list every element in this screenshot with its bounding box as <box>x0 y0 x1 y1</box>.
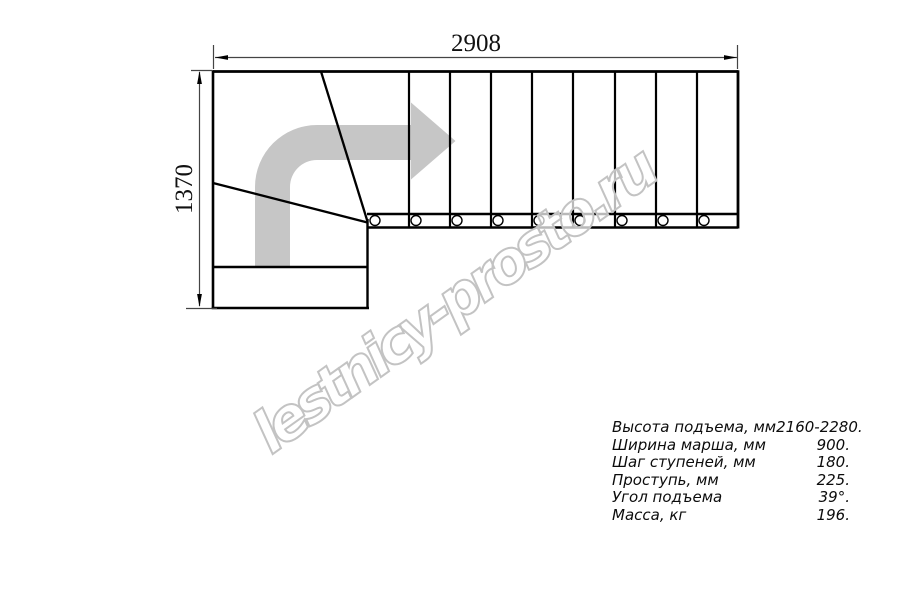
spec-row: Шаг ступеней, мм 180. <box>612 454 850 472</box>
dimension-arrowhead-bottom <box>197 294 202 307</box>
fastener-circle <box>370 216 380 226</box>
spec-label: Угол подъема <box>612 489 722 507</box>
fastener-circle <box>452 216 462 226</box>
fastener-circle <box>534 216 544 226</box>
dimension-arrowhead-right <box>724 55 737 60</box>
spec-label: Шаг ступеней, мм <box>612 454 756 472</box>
dimension-height: 1370 <box>171 71 217 309</box>
spec-row: Угол подъема 39°. <box>612 489 850 507</box>
dimension-width-label: 2908 <box>451 30 501 57</box>
dimension-width: 2908 <box>214 30 738 69</box>
dimension-height-label: 1370 <box>171 164 198 214</box>
spec-value: 196. <box>817 507 850 525</box>
fastener-circle <box>699 216 709 226</box>
spec-label: Масса, кг <box>612 507 686 525</box>
spec-value: 900. <box>817 437 850 455</box>
spec-label: Проступь, мм <box>612 472 719 490</box>
spec-value: 2160-2280. <box>776 419 863 437</box>
spec-row: Ширина марша, мм 900. <box>612 437 850 455</box>
fastener-circle <box>493 216 503 226</box>
spec-value: 225. <box>817 472 850 490</box>
spec-row: Масса, кг 196. <box>612 507 850 525</box>
fastener-circle <box>411 216 421 226</box>
fastener-circle <box>658 216 668 226</box>
spec-table: Высота подъема, мм 2160-2280. Ширина мар… <box>612 419 850 524</box>
winder-section <box>212 70 738 309</box>
spec-label: Ширина марша, мм <box>612 437 766 455</box>
winder-tread-line-2 <box>213 183 368 223</box>
fastener-circle <box>617 216 627 226</box>
dimension-arrowhead-left <box>215 55 228 60</box>
dimension-arrowhead-top <box>197 71 202 84</box>
fastener-circle <box>575 216 585 226</box>
spec-label: Высота подъема, мм <box>612 419 776 437</box>
fastener-circles <box>370 216 709 226</box>
spec-row: Проступь, мм 225. <box>612 472 850 490</box>
spec-row: Высота подъема, мм 2160-2280. <box>612 419 850 437</box>
spec-value: 180. <box>817 454 850 472</box>
spec-value: 39°. <box>819 489 850 507</box>
stair-plan-canvas: 2908 1370 lestnicy-prosto.ru Высота подъ… <box>0 0 900 600</box>
